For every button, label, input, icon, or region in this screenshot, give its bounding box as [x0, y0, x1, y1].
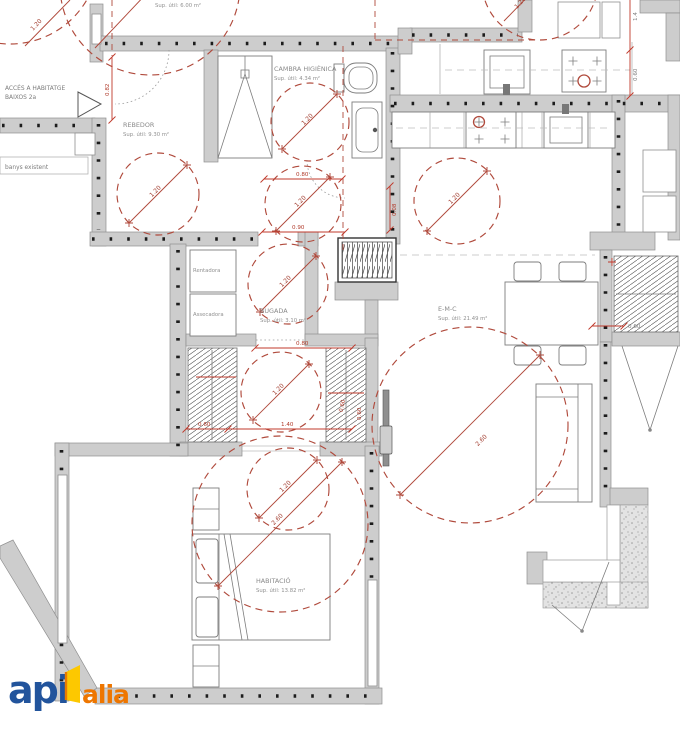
room-area-bugada: Sup. útil: 3.10 m² — [260, 317, 306, 324]
access-note-line2: BAIXOS 2a — [5, 95, 36, 101]
pillow — [196, 539, 218, 583]
dim-label: 1.40 — [281, 422, 294, 428]
neighbor-box-top2 — [602, 2, 620, 38]
room-label-bugada: BUGADA — [260, 307, 288, 315]
room-label-emc: E-M-C — [438, 305, 457, 313]
chair — [514, 346, 541, 365]
bedroom-window-left — [58, 475, 67, 643]
room-label-rebedor: REBEDOR — [123, 121, 155, 129]
wall-notch — [75, 133, 95, 155]
room-area-cambra: Sup. útil: 4.34 m² — [274, 75, 320, 82]
access-note-line1: ACCÉS A HABITATGE — [5, 84, 66, 92]
dim-label: 0.82 — [105, 84, 111, 96]
entry-door-swing — [115, 50, 169, 104]
chair — [514, 262, 541, 281]
kitchen-sink-faucet — [562, 104, 569, 114]
dim-label: 0.90 — [292, 225, 305, 231]
room-label-habitacio: HABITACIÓ — [256, 576, 291, 585]
dim-label: 0.60 — [628, 324, 641, 330]
upper-sink-faucet — [503, 84, 510, 95]
apialia-logo: api alia — [8, 665, 129, 712]
washer-label: Rentadora — [193, 268, 220, 274]
logo-api-text: api — [8, 668, 68, 712]
room-area-habitacio: Sup. útil: 13.82 m² — [256, 587, 305, 594]
neighbor-box-top — [558, 2, 600, 38]
entry-arrow-icon — [78, 92, 101, 117]
logo-alia-text: alia — [82, 680, 129, 709]
dim-label: 0.80 — [296, 172, 309, 178]
laundry-cabinets — [190, 250, 236, 336]
room-area-emc: Sup. útil: 21.49 m² — [438, 315, 487, 322]
neighbor-box-right — [643, 150, 676, 192]
floor-plan-page: 1.20 1.20 1.20 1.20 1.20 1.20 1.20 1.20 … — [0, 0, 680, 729]
dim-label: 0.60 — [198, 422, 211, 428]
pillow — [196, 597, 218, 637]
dining-table — [505, 282, 598, 345]
circle-diameter-label: 1.20 — [300, 112, 315, 127]
dim-label: 0.08 — [392, 203, 398, 216]
floor-plan-drawing: 1.20 1.20 1.20 1.20 1.20 1.20 1.20 1.20 … — [0, 0, 680, 729]
circle-diameter-label: 2.60 — [270, 512, 285, 527]
dim-label: 0.60 — [357, 407, 363, 420]
banys-note: banys existent — [5, 165, 49, 171]
circle-diameter-label: 2.60 — [474, 433, 489, 448]
terrace — [543, 505, 648, 633]
chair — [559, 346, 586, 365]
terrace-railing — [607, 505, 620, 605]
room-label-cambra: CAMBRA HIGIÈNICA — [274, 64, 337, 73]
east-door-swing — [622, 346, 678, 432]
dining-set — [505, 262, 598, 365]
window-top-left — [92, 14, 101, 44]
area-label-top: Sup. útil: 6.00 m² — [155, 2, 201, 9]
upper-cooktop — [562, 50, 606, 92]
dim-label: 1.4 — [633, 12, 639, 21]
sofa — [536, 384, 592, 502]
dim-label: 0.80 — [296, 341, 309, 347]
room-area-rebedor: Sup. útil: 9.30 m² — [123, 131, 169, 138]
neighbor-box-right2 — [643, 196, 676, 232]
sink-faucet-dot — [373, 128, 377, 132]
circle-diameter-label: 1.20 — [29, 18, 43, 33]
chair — [559, 262, 586, 281]
dryer-label: Assecadora — [193, 312, 224, 318]
bedroom-window-right — [368, 580, 377, 686]
bathroom-sink-cabinet — [352, 102, 382, 158]
shaft — [338, 238, 396, 282]
dim-label: 0.60 — [633, 68, 639, 81]
cooktop — [466, 112, 516, 148]
